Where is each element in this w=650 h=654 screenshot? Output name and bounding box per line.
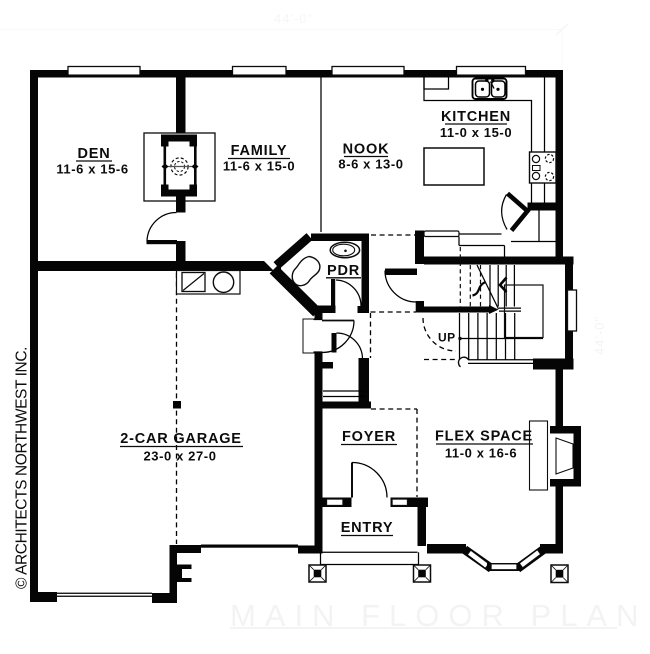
svg-text:FLEX SPACE: FLEX SPACE [435,429,533,445]
svg-text:44'-0": 44'-0" [274,11,313,26]
svg-text:11-6 x 15-0: 11-6 x 15-0 [223,159,295,174]
svg-text:2-CAR GARAGE: 2-CAR GARAGE [120,431,242,447]
svg-text:DEN: DEN [77,146,110,162]
svg-text:PDR: PDR [327,263,360,279]
svg-text:FOYER: FOYER [342,429,396,445]
svg-text:11-6 x 15-6: 11-6 x 15-6 [56,162,128,177]
svg-text:KITCHEN: KITCHEN [441,109,511,125]
svg-text:11-0 x 16-6: 11-0 x 16-6 [445,446,517,461]
svg-text:44'-0": 44'-0" [592,316,607,355]
svg-text:23-0 x 27-0: 23-0 x 27-0 [143,449,216,464]
svg-text:ENTRY: ENTRY [341,520,394,536]
svg-text:8-6 x 13-0: 8-6 x 13-0 [338,157,403,172]
svg-text:FAMILY: FAMILY [231,143,288,159]
svg-text:© ARCHITECTS NORTHWEST INC.: © ARCHITECTS NORTHWEST INC. [14,347,31,589]
svg-text:UP: UP [438,331,456,345]
svg-text:NOOK: NOOK [343,142,390,158]
svg-text:11-0 x 15-0: 11-0 x 15-0 [440,125,512,140]
